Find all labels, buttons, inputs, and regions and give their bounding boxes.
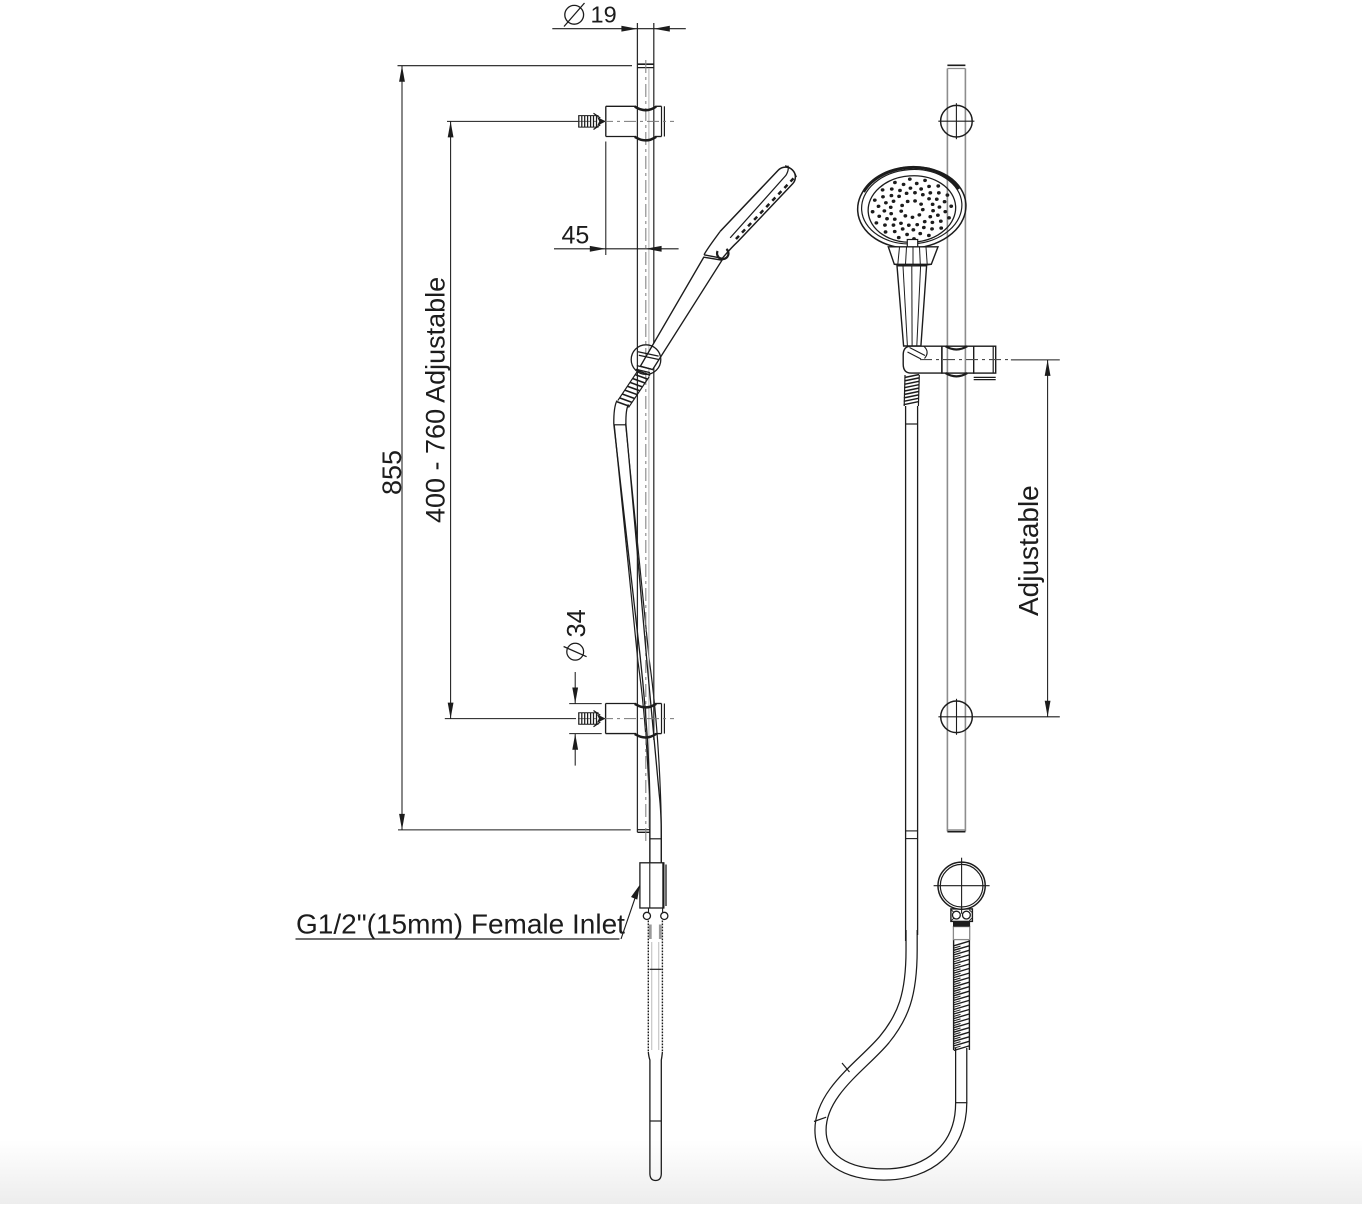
svg-text:19: 19 bbox=[591, 2, 617, 28]
svg-text:400 - 760 Adjustable: 400 - 760 Adjustable bbox=[421, 277, 451, 523]
svg-text:G1/2"(15mm) Female Inlet: G1/2"(15mm) Female Inlet bbox=[296, 909, 625, 940]
svg-text:Adjustable: Adjustable bbox=[1013, 485, 1044, 616]
svg-text:45: 45 bbox=[562, 222, 590, 250]
svg-text:855: 855 bbox=[377, 450, 407, 495]
svg-text:34: 34 bbox=[563, 609, 591, 637]
